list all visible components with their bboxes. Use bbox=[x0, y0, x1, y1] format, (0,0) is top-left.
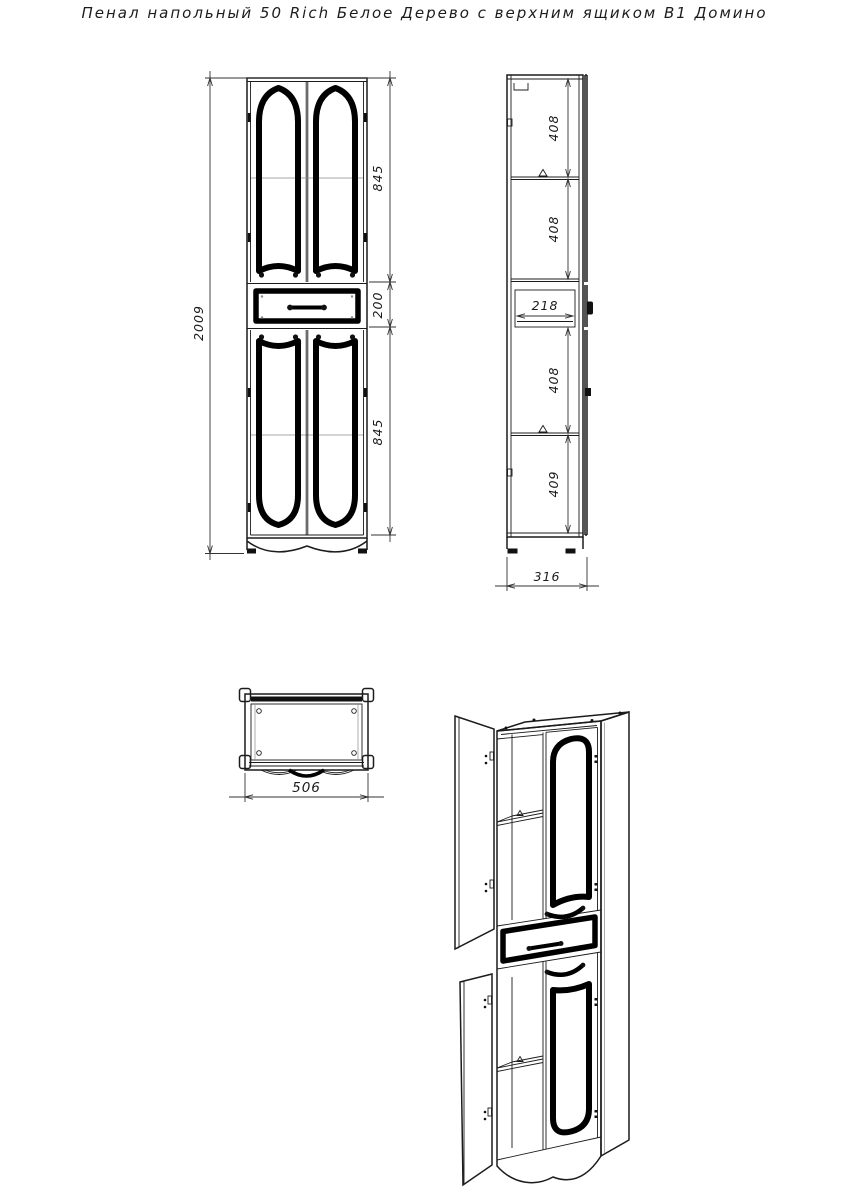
plinth-apron bbox=[247, 538, 367, 552]
right-side-face bbox=[601, 712, 629, 1156]
upper-door-knobs bbox=[259, 272, 355, 277]
lower-left-door-panel bbox=[259, 341, 298, 525]
top-view: 506 bbox=[225, 680, 400, 815]
dim-section1: 408 bbox=[546, 115, 561, 142]
open-lower-door bbox=[460, 974, 492, 1185]
upper-left-door-panel bbox=[259, 88, 298, 271]
top-face bbox=[497, 712, 629, 731]
dim-lower-section: 845 bbox=[370, 419, 385, 446]
upper-right-door-panel bbox=[316, 88, 355, 271]
dim-drawer-height: 200 bbox=[370, 292, 385, 319]
top-cabinet bbox=[240, 689, 374, 777]
drawing-title: Пенал напольный 50 Rich Белое Дерево с в… bbox=[0, 4, 849, 22]
drawing-sheet: { "title": "Пенал напольный 50 Rich Бело… bbox=[0, 0, 849, 1200]
persp-drawer-front bbox=[503, 917, 595, 961]
side-view: 408 408 218 408 409 316 bbox=[490, 55, 620, 605]
dim-upper-section: 845 bbox=[370, 165, 385, 192]
persp-lower-door-panel bbox=[553, 984, 589, 1132]
perspective-view bbox=[445, 700, 640, 1200]
dim-section2: 408 bbox=[546, 216, 561, 243]
open-upper-door bbox=[455, 716, 494, 949]
dim-section3: 408 bbox=[546, 367, 561, 394]
dim-total-depth: 316 bbox=[534, 569, 561, 584]
front-cabinet bbox=[247, 78, 367, 554]
dim-total-width: 506 bbox=[292, 780, 321, 796]
drawer-handle-side bbox=[587, 302, 594, 315]
dim-total-height: 2009 bbox=[191, 305, 206, 341]
dim-section4: 409 bbox=[546, 471, 561, 498]
persp-lower-door-handle bbox=[547, 965, 583, 975]
lower-door-knobs bbox=[259, 334, 355, 339]
persp-upper-door-handle bbox=[547, 908, 583, 917]
lower-right-door-panel bbox=[316, 341, 355, 525]
perspective-cabinet bbox=[455, 712, 629, 1186]
interior-upper bbox=[497, 735, 543, 921]
front-view: 2009 845 200 845 bbox=[180, 55, 405, 575]
persp-upper-door-panel bbox=[553, 738, 589, 905]
interior-lower bbox=[497, 977, 543, 1148]
dim-drawer-depth: 218 bbox=[532, 298, 559, 313]
